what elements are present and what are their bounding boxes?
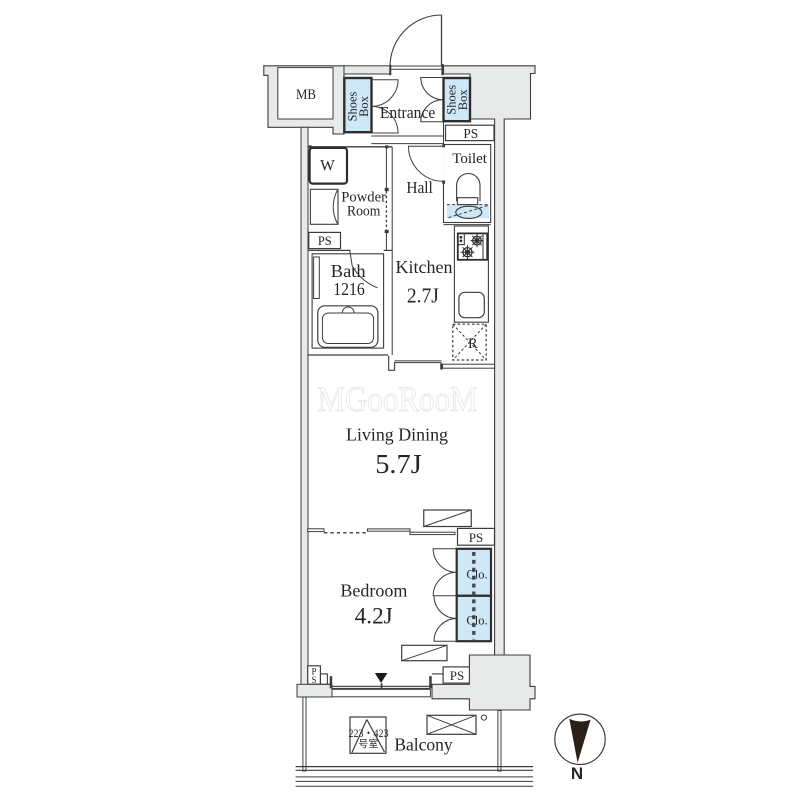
svg-text:PS: PS: [450, 668, 464, 683]
svg-text:S: S: [311, 675, 316, 685]
svg-text:Living Dining: Living Dining: [346, 425, 448, 445]
svg-text:PS: PS: [469, 530, 483, 545]
svg-text:Kitchen: Kitchen: [396, 257, 453, 277]
svg-text:Room: Room: [347, 203, 381, 219]
svg-text:MGooRooM: MGooRooM: [318, 379, 478, 419]
svg-text:W: W: [320, 158, 335, 175]
svg-text:Box: Box: [357, 95, 371, 117]
svg-text:R: R: [468, 336, 478, 352]
svg-text:Clo.: Clo.: [466, 614, 487, 628]
svg-text:MB: MB: [296, 87, 316, 103]
svg-text:Bedroom: Bedroom: [340, 580, 407, 600]
svg-text:Bath: Bath: [331, 261, 366, 281]
svg-text:Box: Box: [456, 89, 470, 111]
svg-text:223・423: 223・423: [349, 726, 389, 740]
svg-text:N: N: [571, 764, 583, 783]
svg-text:4.2J: 4.2J: [355, 603, 393, 628]
svg-text:号室: 号室: [358, 738, 378, 751]
svg-text:PS: PS: [318, 234, 332, 248]
svg-text:Balcony: Balcony: [394, 735, 453, 755]
svg-text:PS: PS: [463, 126, 478, 141]
svg-text:5.7J: 5.7J: [375, 449, 422, 479]
svg-text:Clo.: Clo.: [466, 568, 487, 582]
svg-text:2.7J: 2.7J: [407, 283, 439, 307]
svg-text:Toilet: Toilet: [452, 151, 488, 167]
svg-text:Hall: Hall: [406, 178, 433, 197]
svg-text:1216: 1216: [333, 279, 365, 299]
svg-text:Entrance: Entrance: [380, 103, 436, 122]
